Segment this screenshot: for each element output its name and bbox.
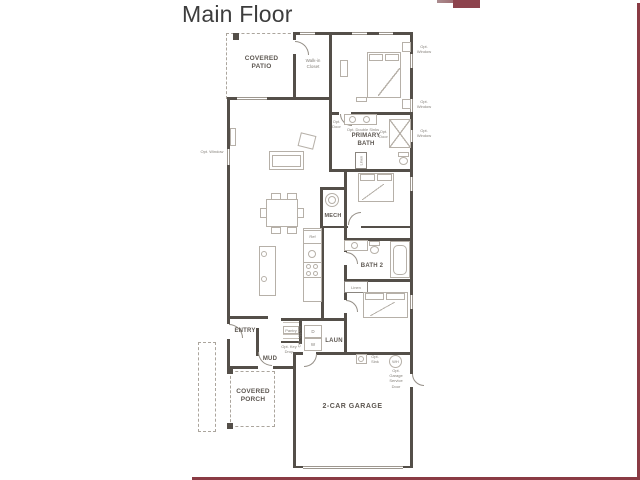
dryer-label: D — [304, 329, 322, 335]
dining-chair — [297, 208, 304, 218]
wall-mech — [320, 226, 346, 229]
opt-window-label: Opt. Window — [413, 44, 435, 54]
sink — [363, 116, 370, 123]
dining-chair — [271, 193, 281, 200]
opt-window-label: Opt. Window — [413, 99, 435, 109]
wall-mech — [320, 187, 346, 190]
room-label-bath2: BATH 2 — [355, 263, 389, 271]
burner — [306, 271, 311, 276]
porch-post — [227, 368, 233, 374]
opt-window-label: Opt. Window — [200, 149, 224, 154]
page-title: Main Floor — [182, 1, 293, 28]
linen-label: Linen — [358, 151, 363, 171]
opt-garage-service-door-label: Opt. Garage Service Door — [386, 368, 406, 389]
dining-chair — [287, 193, 297, 200]
sofa-seat — [272, 155, 301, 167]
refrigerator-label: Ref — [303, 234, 322, 239]
bed-fold-line — [362, 184, 384, 200]
opt-sink-label: Opt. Sink — [368, 354, 382, 364]
porch-post — [227, 423, 233, 429]
garage-door — [303, 466, 403, 469]
pillow — [386, 293, 405, 300]
opt-window-label: Opt. Window — [413, 128, 435, 138]
room-label-laun: LAUN — [322, 338, 346, 346]
nightstand — [402, 99, 411, 109]
burner — [313, 264, 318, 269]
red-accent-top-nub — [453, 0, 480, 8]
floor-plan-page: Main Floor COVERED PATIO — [0, 0, 640, 480]
door-arc — [295, 41, 309, 55]
burner — [313, 271, 318, 276]
utility-sink-basin — [358, 356, 364, 362]
walkway-outline — [198, 342, 216, 432]
washer-label: W — [304, 342, 322, 348]
wall-entry — [227, 316, 268, 319]
wall-laundry — [281, 318, 347, 321]
wall-garage — [293, 352, 296, 468]
room-label-mech: MECH — [319, 213, 347, 220]
sink — [351, 242, 358, 249]
island-sink — [261, 251, 267, 257]
window — [227, 149, 230, 165]
dining-chair — [271, 227, 281, 234]
room-label-primary-bath: PRIMARY BATH — [348, 133, 384, 148]
wall — [293, 97, 332, 100]
bench — [356, 97, 367, 102]
window — [300, 32, 315, 35]
pillow — [377, 174, 392, 181]
doorway — [348, 226, 361, 229]
tv-console — [230, 128, 236, 146]
door-arc — [348, 212, 361, 225]
linen-label: Linen — [346, 285, 366, 290]
room-label-garage: 2-CAR GARAGE — [315, 403, 390, 412]
wall-mech — [320, 187, 323, 228]
service-door-arc — [412, 374, 424, 386]
bed-fold-line — [378, 68, 400, 96]
room-label-entry: ENTRY — [230, 328, 260, 336]
door-arc — [304, 354, 317, 367]
pillow — [385, 54, 399, 61]
pillow — [360, 174, 375, 181]
sink — [349, 116, 356, 123]
kitchen-sink — [308, 250, 316, 258]
opt-uppers-label: Opt. Uppers — [296, 324, 301, 350]
pillow — [365, 293, 384, 300]
room-label-mud: MUD — [258, 356, 282, 364]
water-heater-label: WH — [389, 359, 402, 364]
pillow — [369, 54, 383, 61]
dining-chair — [260, 208, 267, 218]
armchair — [298, 132, 317, 149]
patio-sliding-door — [237, 97, 267, 100]
door-arc — [346, 300, 358, 312]
room-label-covered-porch: COVERED PORCH — [233, 388, 273, 404]
shower-glass-mark — [390, 120, 410, 147]
opt-key-drop-label: Opt. Key Drop — [281, 344, 297, 354]
dining-table — [266, 199, 298, 227]
window — [379, 32, 393, 35]
toilet-bowl — [399, 157, 408, 165]
wall — [329, 169, 412, 172]
dresser — [340, 60, 348, 77]
dining-chair — [287, 227, 297, 234]
water-heater-inner — [328, 196, 336, 204]
window — [410, 177, 413, 191]
island-sink — [261, 276, 267, 282]
bed-fold-line — [370, 302, 395, 316]
wall — [410, 32, 413, 468]
window — [410, 295, 413, 309]
patio-post — [233, 33, 239, 40]
doorway — [258, 366, 273, 369]
burner — [306, 264, 311, 269]
bathtub-inner — [393, 245, 407, 275]
nightstand — [402, 42, 411, 52]
wall — [329, 32, 332, 172]
window — [410, 54, 413, 68]
window — [352, 32, 367, 35]
room-label-covered-patio: COVERED PATIO — [239, 55, 284, 71]
toilet-bowl — [370, 246, 379, 254]
room-label-walk-in-closet: Walk-in Closet — [299, 58, 327, 70]
